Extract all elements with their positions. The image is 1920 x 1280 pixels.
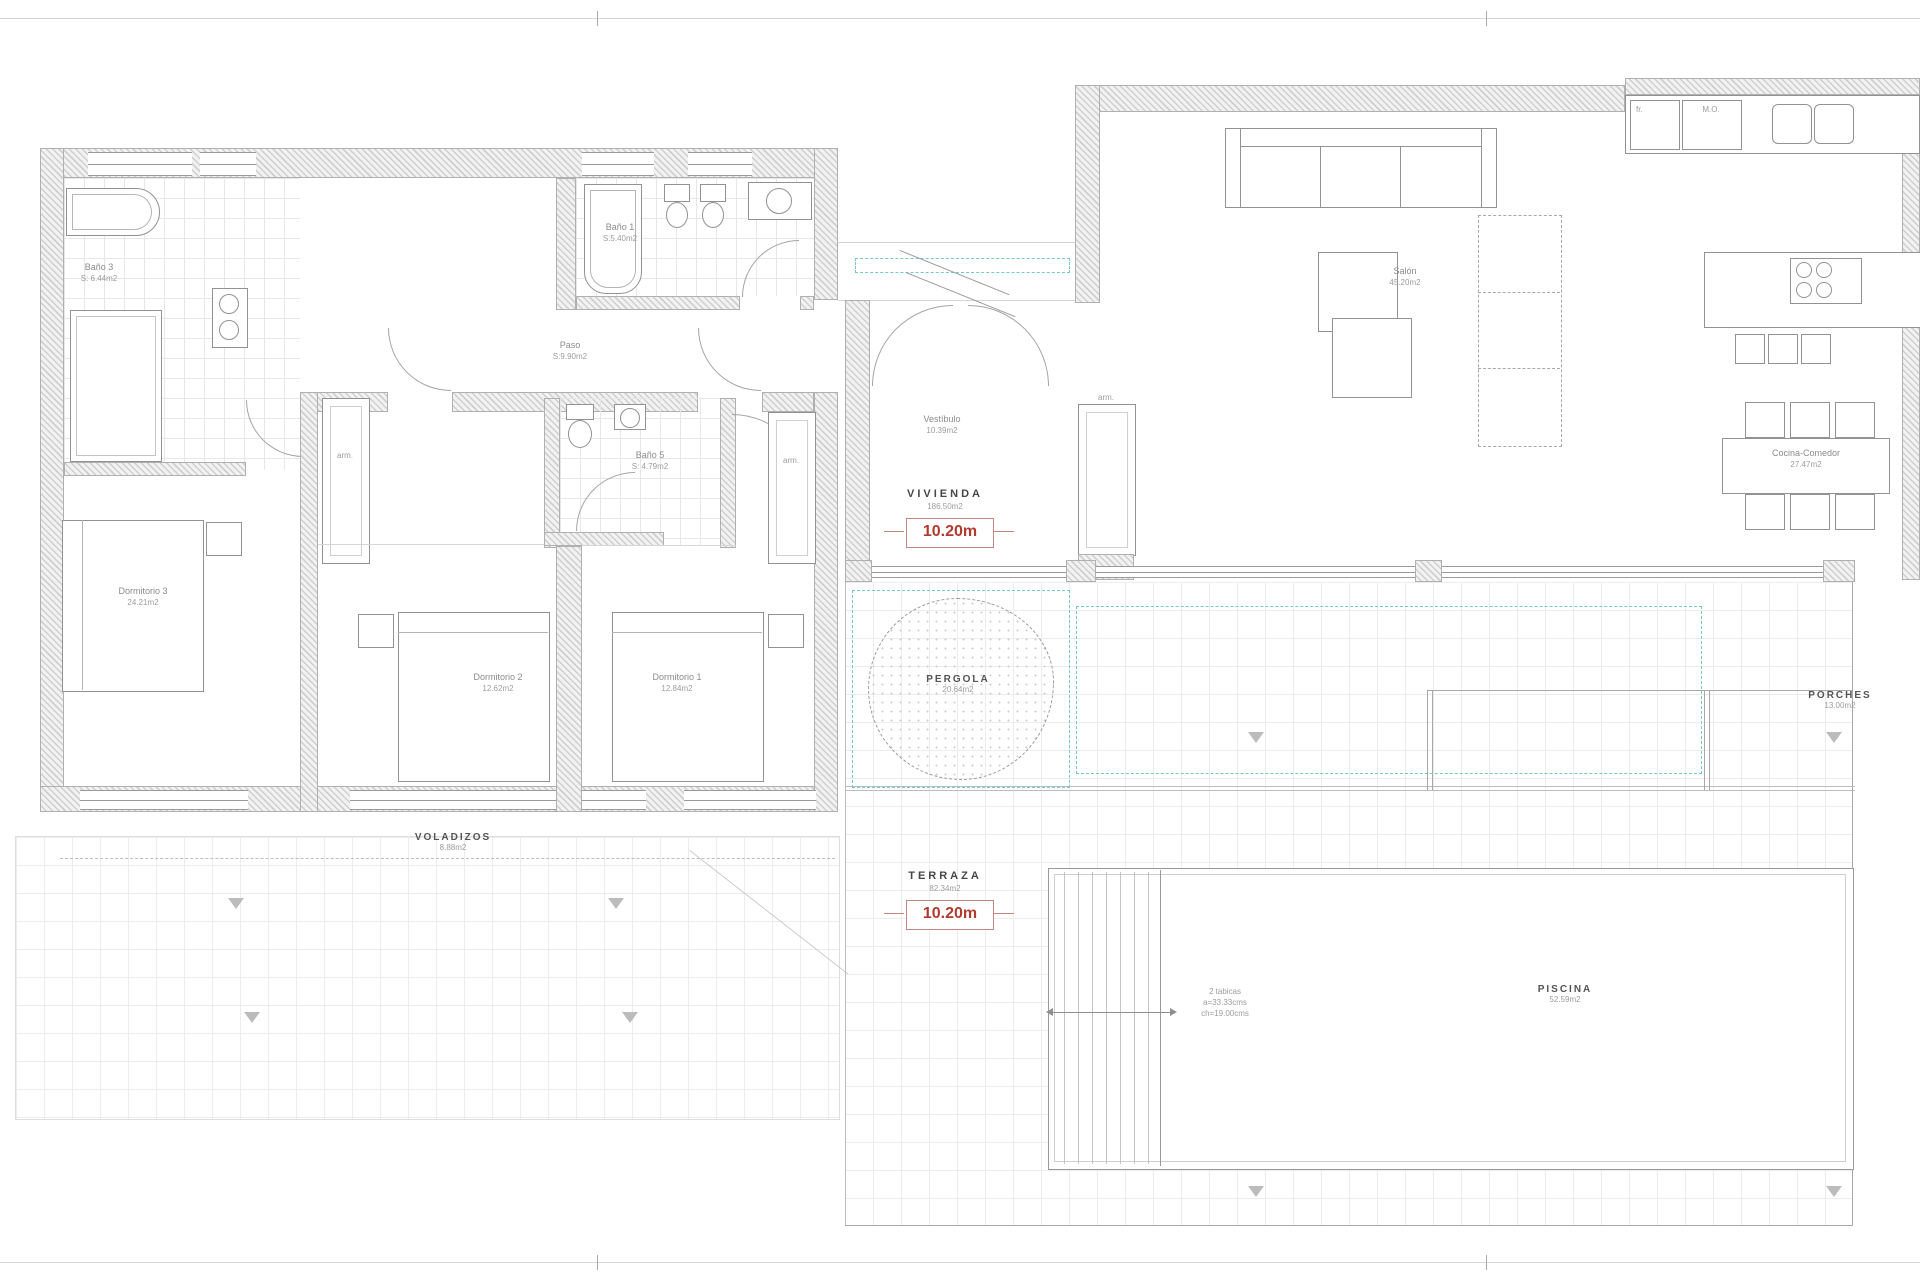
door-arc xyxy=(872,305,953,386)
frame-top-line xyxy=(0,18,1920,19)
note-line: a=33.33cms xyxy=(1180,997,1270,1008)
sink-bowl xyxy=(620,408,640,428)
drain-marker-icon xyxy=(622,1012,638,1023)
dimension-tick xyxy=(884,531,904,532)
sliding-window xyxy=(80,790,248,810)
dimension-box: 10.20m xyxy=(906,518,994,548)
bed-pillow-line xyxy=(82,520,83,690)
room-label-salon: Salón 45.20m2 xyxy=(1360,266,1450,288)
pool-step-edge xyxy=(1160,870,1161,1166)
room-label-dorm3: Dormitorio 3 24.21m2 xyxy=(98,586,188,608)
chair xyxy=(1835,402,1875,438)
room-area: 24.21m2 xyxy=(98,597,188,608)
room-label-dorm2: Dormitorio 2 12.62m2 xyxy=(455,672,541,694)
terrace-edge-left xyxy=(845,582,846,1225)
room-name: Dormitorio 2 xyxy=(473,672,522,682)
sofa-seat xyxy=(1240,146,1322,208)
zone-label-porches: PORCHES 13.00m2 xyxy=(1780,690,1900,710)
window xyxy=(88,152,192,176)
wall-bath1-bottom xyxy=(576,296,740,310)
sofa-back xyxy=(1240,128,1482,148)
zone-area-terraza: 82.34m2 xyxy=(880,884,1010,893)
drain-marker-icon xyxy=(1826,732,1842,743)
pool-step-line xyxy=(1120,872,1121,1164)
room-name: Baño 3 xyxy=(85,262,114,272)
drain-marker-icon xyxy=(228,898,244,909)
door-arc xyxy=(388,328,451,391)
bed-pillow-line xyxy=(612,632,762,633)
nightstand-symbol xyxy=(206,522,242,556)
room-label-dorm1: Dormitorio 1 12.84m2 xyxy=(634,672,720,694)
pool-step-line xyxy=(1148,872,1149,1164)
overhang-dashed-line xyxy=(60,858,835,859)
wall-rightside xyxy=(1902,85,1920,580)
chaise-sofa xyxy=(1478,215,1562,447)
zone-label-pergola: PERGOLA 20.64m2 xyxy=(908,674,1008,694)
sink-double-bowl xyxy=(1772,104,1812,144)
bidet-symbol xyxy=(700,184,726,202)
room-area: 45.20m2 xyxy=(1360,277,1450,288)
wall-bath3-bottom xyxy=(64,462,246,476)
zone-label-terraza: TERRAZA xyxy=(880,870,1010,882)
wall-kitchen-top xyxy=(1625,78,1920,95)
wall-interior-vertical xyxy=(300,392,318,812)
wall-pier xyxy=(845,560,872,582)
room-name: Vestíbulo xyxy=(923,414,960,424)
wall-top-right-wing xyxy=(1075,85,1625,112)
closet-label: arm. xyxy=(1082,392,1130,403)
closet-label: arm. xyxy=(326,450,364,461)
wall-leftside-right-wing xyxy=(1075,85,1100,303)
chair xyxy=(1835,494,1875,530)
zone-area: 20.64m2 xyxy=(908,685,1008,694)
sofa-seat xyxy=(1320,146,1402,208)
chair xyxy=(1790,494,1830,530)
pool-step-line xyxy=(1078,872,1079,1164)
bidet-bowl xyxy=(702,202,724,228)
room-name: Cocina-Comedor xyxy=(1772,448,1840,458)
room-label-bano1: Baño 1 S:5.40m2 xyxy=(580,222,660,244)
room-name: Dormitorio 1 xyxy=(652,672,701,682)
zone-area-vivienda: 186.50m2 xyxy=(880,502,1010,511)
arrowhead-icon xyxy=(1170,1008,1177,1016)
zone-area: 52.59m2 xyxy=(1505,995,1625,1004)
drain-marker-icon xyxy=(244,1012,260,1023)
dimension-arrow-line xyxy=(1052,1012,1170,1013)
nightstand-symbol xyxy=(358,614,394,648)
room-label-cocina: Cocina-Comedor 27.47m2 xyxy=(1760,448,1852,470)
bed-symbol xyxy=(612,612,764,782)
room-area: S:9.90m2 xyxy=(535,351,605,362)
shower-tray-inner xyxy=(76,316,156,456)
sliding-door xyxy=(872,566,1066,578)
dimension-box: 10.20m xyxy=(906,900,994,930)
bed-pillow-line xyxy=(398,632,548,633)
zone-name: VOLADIZOS xyxy=(388,832,518,843)
chair xyxy=(1745,494,1785,530)
bed-symbol xyxy=(398,612,550,782)
window xyxy=(200,152,256,176)
door-arc xyxy=(698,328,761,391)
room-name: Dormitorio 3 xyxy=(118,586,167,596)
window xyxy=(688,152,752,176)
wall-pier xyxy=(1066,560,1096,582)
drain-marker-icon xyxy=(608,898,624,909)
dorm2-top-line xyxy=(318,544,544,545)
burner xyxy=(1816,262,1832,278)
path-line xyxy=(1709,690,1710,790)
frame-tick xyxy=(1486,11,1487,26)
bathtub-inner xyxy=(72,194,152,230)
terrace-paving xyxy=(15,836,840,1120)
coffee-table xyxy=(1332,318,1412,398)
burner xyxy=(1796,262,1812,278)
wall-right-upper xyxy=(814,148,838,300)
note-line: 2 tabicas xyxy=(1180,986,1270,997)
wall-paso xyxy=(762,392,814,412)
toilet-symbol xyxy=(664,184,690,202)
wall-bath5-bottom xyxy=(544,532,664,546)
wall-pier xyxy=(1823,560,1855,582)
floor-plan-sheet: Baño 3 S: 6.44m2 Baño 1 S:5.40m2 Paso S:… xyxy=(0,0,1920,1280)
sink-bowl xyxy=(219,294,239,314)
door-arc xyxy=(968,305,1049,386)
pergola-dashed-outline xyxy=(1076,606,1702,774)
zone-label-piscina: PISCINA 52.59m2 xyxy=(1505,984,1625,1004)
sink-bowl xyxy=(766,188,792,214)
drain-marker-icon xyxy=(1826,1186,1842,1197)
wall-dorm-divider xyxy=(556,546,582,812)
room-label-bano3: Baño 3 S: 6.44m2 xyxy=(56,262,142,284)
sliding-door xyxy=(1096,566,1415,578)
stool xyxy=(1735,334,1765,364)
chair xyxy=(1745,402,1785,438)
walkway-line xyxy=(838,242,1077,243)
room-label-paso: Paso S:9.90m2 xyxy=(535,340,605,362)
zone-name: PORCHES xyxy=(1780,690,1900,701)
sliding-window xyxy=(684,790,816,810)
toilet-bowl xyxy=(666,202,688,228)
room-name: Salón xyxy=(1393,266,1416,276)
dimension-tick xyxy=(994,531,1014,532)
zone-area: 8.88m2 xyxy=(388,843,518,852)
zone-area: 13.00m2 xyxy=(1780,701,1900,710)
room-label-vestibulo: Vestíbulo 10.39m2 xyxy=(897,414,987,436)
zone-name: PISCINA xyxy=(1505,984,1625,995)
room-area: S:5.40m2 xyxy=(580,233,660,244)
room-area: S: 4.79m2 xyxy=(612,461,688,472)
note-line: ch=19.00cms xyxy=(1180,1008,1270,1019)
room-name: Baño 5 xyxy=(636,450,665,460)
dimension-tick xyxy=(884,913,904,914)
dimension-tick xyxy=(994,913,1014,914)
microwave-label: M.O. xyxy=(1684,104,1738,115)
room-area: S: 6.44m2 xyxy=(56,273,142,284)
frame-tick xyxy=(597,1255,598,1270)
wall-vestibule-left xyxy=(845,300,870,582)
stool xyxy=(1801,334,1831,364)
wardrobe-inner xyxy=(330,406,362,556)
wardrobe-inner xyxy=(1086,412,1128,548)
room-area: 12.84m2 xyxy=(634,683,720,694)
frame-tick xyxy=(1486,1255,1487,1270)
sink-bowl xyxy=(219,320,239,340)
sofa-arm xyxy=(1480,128,1497,208)
arrowhead-icon xyxy=(1046,1008,1053,1016)
room-name: Paso xyxy=(560,340,581,350)
terrace-edge-bottom xyxy=(845,1225,1853,1226)
dorm1-top-line xyxy=(582,545,736,546)
toilet-bowl xyxy=(568,420,592,448)
frame-tick xyxy=(597,11,598,26)
toilet-symbol xyxy=(566,404,594,420)
chaise-cushion-line xyxy=(1478,368,1560,369)
chair xyxy=(1790,402,1830,438)
room-area: 10.39m2 xyxy=(897,425,987,436)
wall-bath5-left xyxy=(544,398,560,548)
pool-step-line xyxy=(1134,872,1135,1164)
room-name: Baño 1 xyxy=(606,222,635,232)
pool-inner-line xyxy=(1054,874,1846,1162)
sliding-window xyxy=(350,790,646,810)
burner xyxy=(1816,282,1832,298)
walkway-line xyxy=(838,300,1077,301)
nightstand-symbol xyxy=(768,614,804,648)
sink-double-bowl xyxy=(1814,104,1854,144)
pool-step-line xyxy=(1064,872,1065,1164)
room-label-bano5: Baño 5 S: 4.79m2 xyxy=(612,450,688,472)
burner xyxy=(1796,282,1812,298)
canopy-dashed-outline xyxy=(855,258,1070,273)
drain-marker-icon xyxy=(1248,732,1264,743)
path-line xyxy=(1704,690,1705,790)
wall-bath1-left xyxy=(556,178,576,310)
chaise-cushion-line xyxy=(1478,292,1560,293)
fridge-label: fr. xyxy=(1632,104,1680,115)
room-area: 12.62m2 xyxy=(455,683,541,694)
wardrobe-inner xyxy=(776,420,808,556)
porch-edge-line xyxy=(845,790,1855,791)
wall-pier xyxy=(1415,560,1442,582)
pool-step-line xyxy=(1106,872,1107,1164)
wall-left xyxy=(40,148,64,812)
wall-right-lower xyxy=(814,392,838,812)
zone-label-voladizos: VOLADIZOS 8.88m2 xyxy=(388,832,518,852)
zone-label-vivienda: VIVIENDA xyxy=(880,488,1010,500)
pool-step-line xyxy=(1092,872,1093,1164)
closet-label: arm. xyxy=(772,455,810,466)
sofa-seat xyxy=(1400,146,1482,208)
window xyxy=(582,152,654,176)
pool-steps-note: 2 tabicas a=33.33cms ch=19.00cms xyxy=(1180,986,1270,1019)
wall-bath1-jamb xyxy=(800,296,814,310)
frame-bottom-line xyxy=(0,1262,1920,1263)
sliding-door xyxy=(1442,566,1823,578)
drain-marker-icon xyxy=(1248,1186,1264,1197)
zone-name: PERGOLA xyxy=(908,674,1008,685)
stool xyxy=(1768,334,1798,364)
room-area: 27.47m2 xyxy=(1760,459,1852,470)
